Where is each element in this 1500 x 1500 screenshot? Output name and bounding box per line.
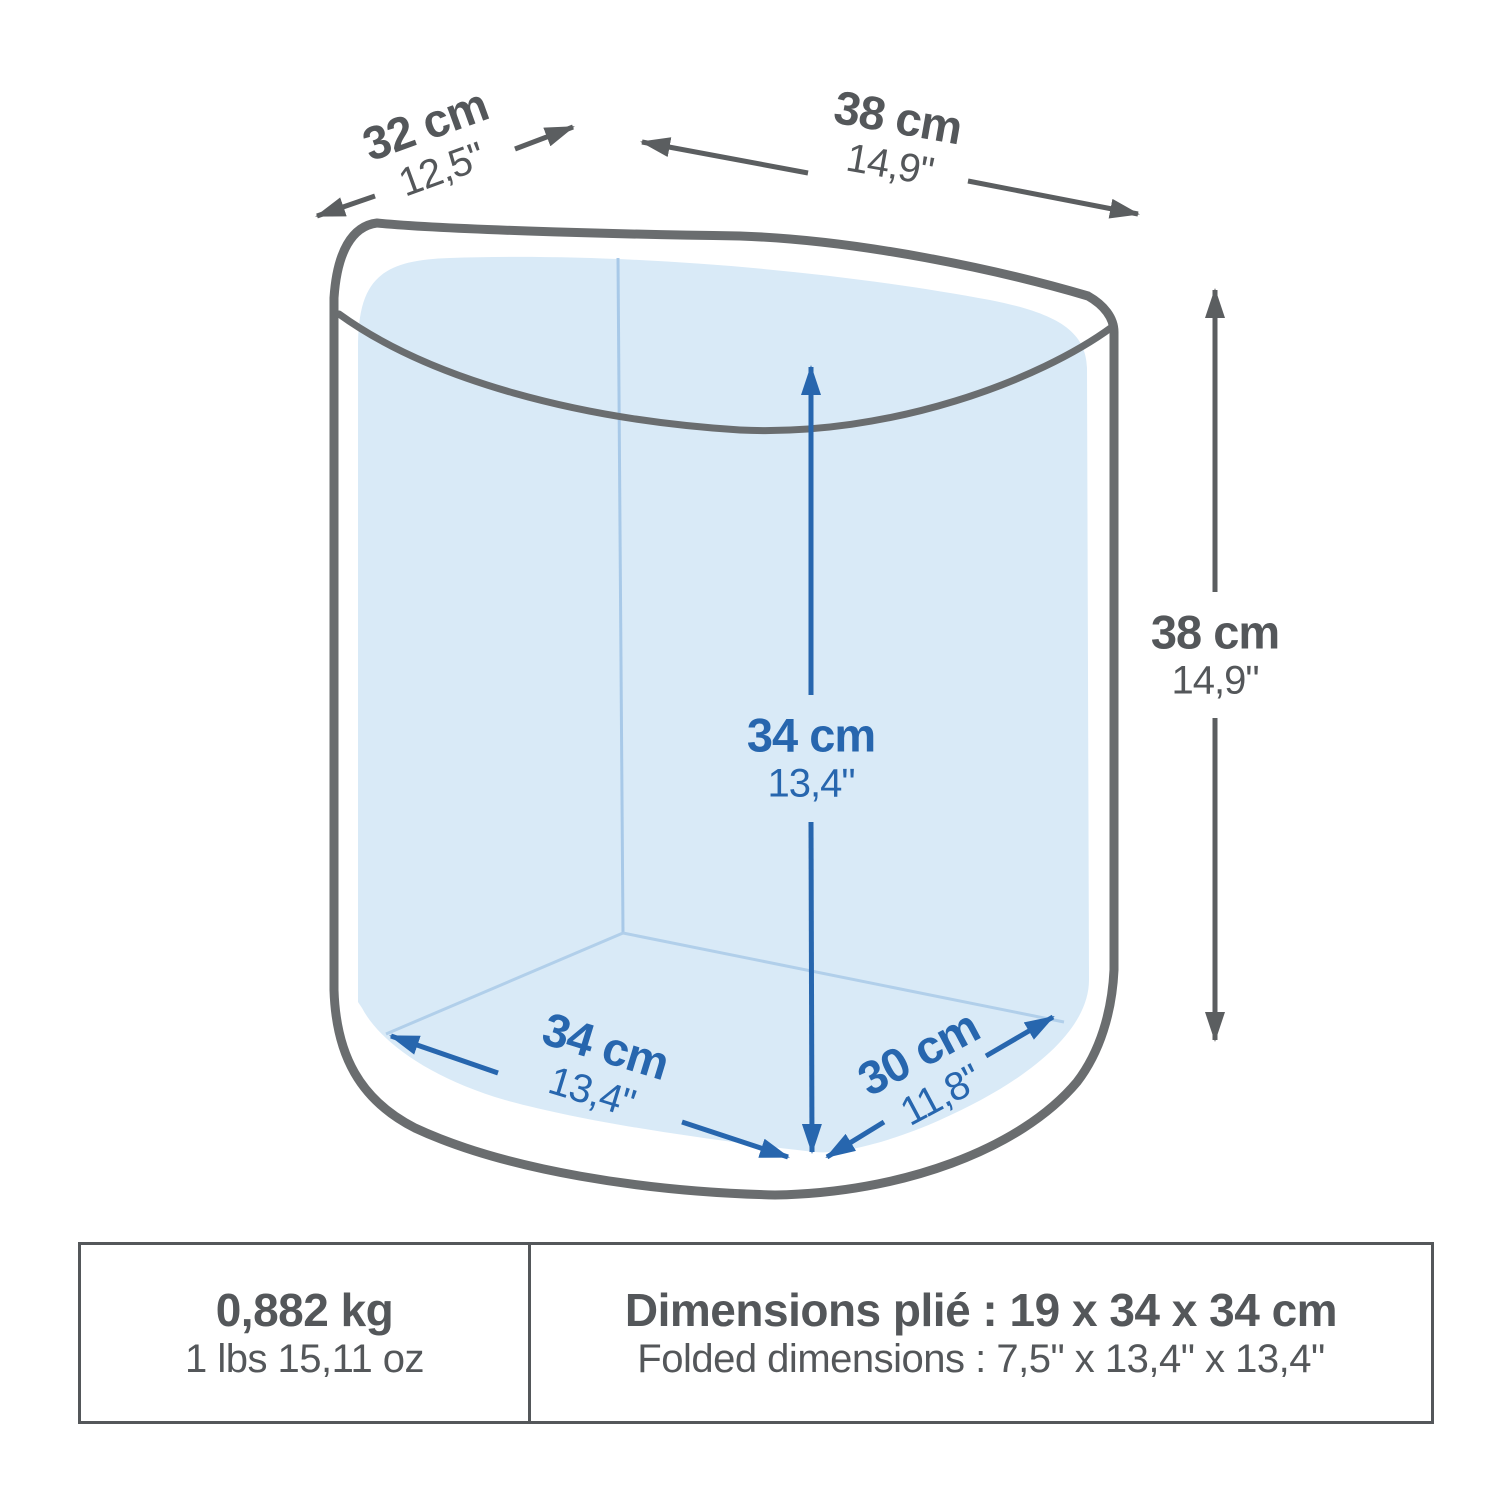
dimension-value-cm: 34 cm [747, 711, 875, 760]
arrow-depth-upper-icon [515, 127, 573, 149]
dimension-value-inch: 14,9" [1171, 660, 1258, 702]
dimension-value-inch: 13,4" [767, 763, 854, 805]
arrow-inner-height-down-icon [811, 822, 812, 1152]
product-dimensions-diagram: 32 cm 12,5" 38 cm 14,9" 38 cm 14,9" 34 c… [0, 0, 1500, 1500]
spec-cell-weight: 0,882 kg 1 lbs 15,11 oz [81, 1245, 531, 1421]
spec-cell-folded-dimensions: Dimensions plié : 19 x 34 x 34 cm Folded… [531, 1245, 1431, 1421]
dimension-label-inner-height: 34 cm 13,4" [747, 711, 875, 804]
arrow-depth-lower-icon [317, 196, 375, 216]
folded-dimensions-imperial: Folded dimensions : 7,5" x 13,4" x 13,4" [637, 1336, 1324, 1382]
folded-dimensions-metric: Dimensions plié : 19 x 34 x 34 cm [625, 1284, 1337, 1337]
spec-table: 0,882 kg 1 lbs 15,11 oz Dimensions plié … [78, 1242, 1434, 1424]
dimension-label-outer-height: 38 cm 14,9" [1151, 608, 1279, 701]
weight-value: 0,882 kg [216, 1284, 394, 1337]
arrow-width-left-icon [642, 142, 808, 173]
weight-value-imperial: 1 lbs 15,11 oz [185, 1336, 424, 1382]
arrow-width-right-icon [968, 181, 1138, 214]
dimension-value-cm: 38 cm [1151, 608, 1279, 657]
